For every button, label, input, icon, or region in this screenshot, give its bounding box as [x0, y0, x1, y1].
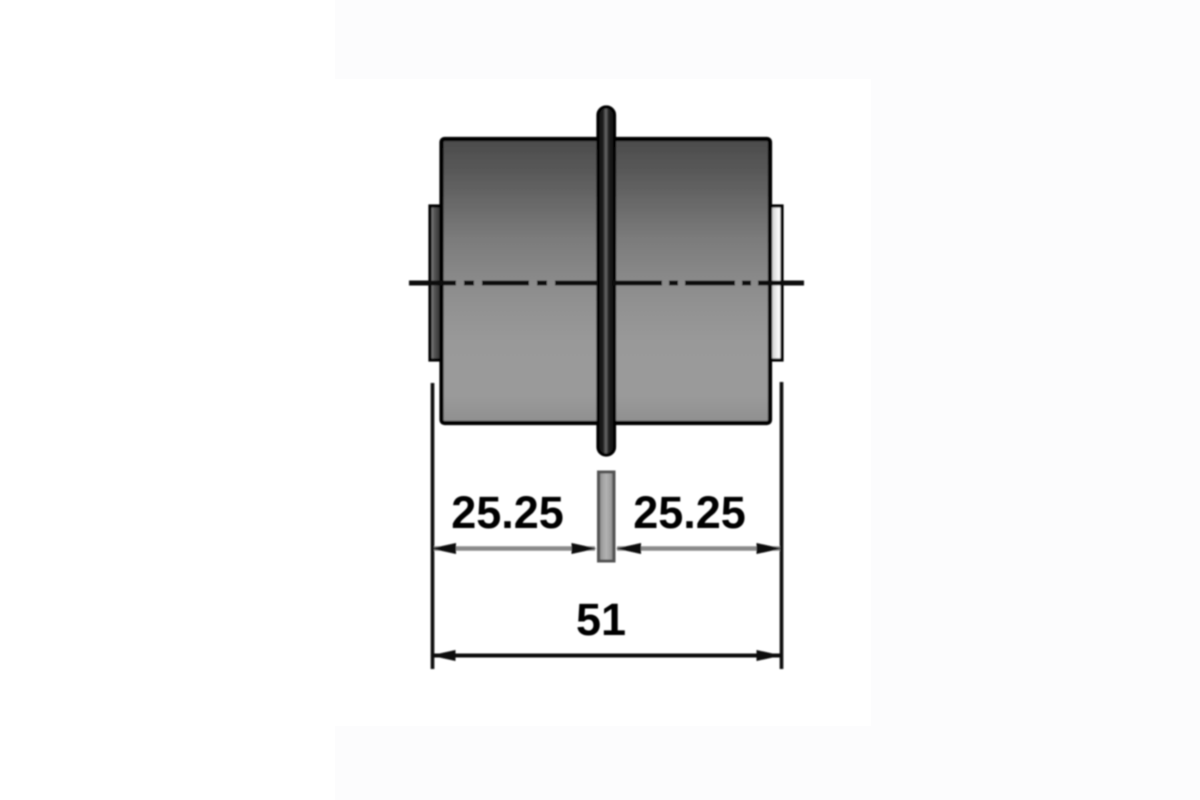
svg-text:25.25: 25.25: [633, 487, 746, 538]
svg-text:51: 51: [576, 594, 626, 645]
svg-text:25.25: 25.25: [451, 487, 564, 538]
